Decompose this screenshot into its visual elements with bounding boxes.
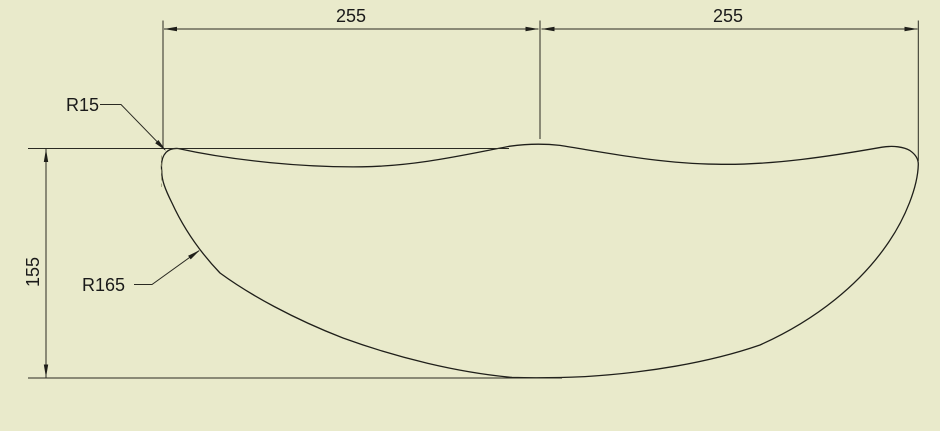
sheet-background — [0, 0, 940, 431]
dimension-value-label: 255 — [713, 6, 743, 26]
drawing-sheet: 255 255 155 R15 R165 — [0, 0, 940, 431]
cad-drawing-canvas[interactable]: 255 255 155 R15 R165 — [0, 0, 940, 431]
radius-label: R15 — [66, 95, 99, 115]
dimension-value-label: 155 — [23, 257, 43, 287]
radius-label: R165 — [82, 275, 125, 295]
dimension-value-label: 255 — [336, 6, 366, 26]
